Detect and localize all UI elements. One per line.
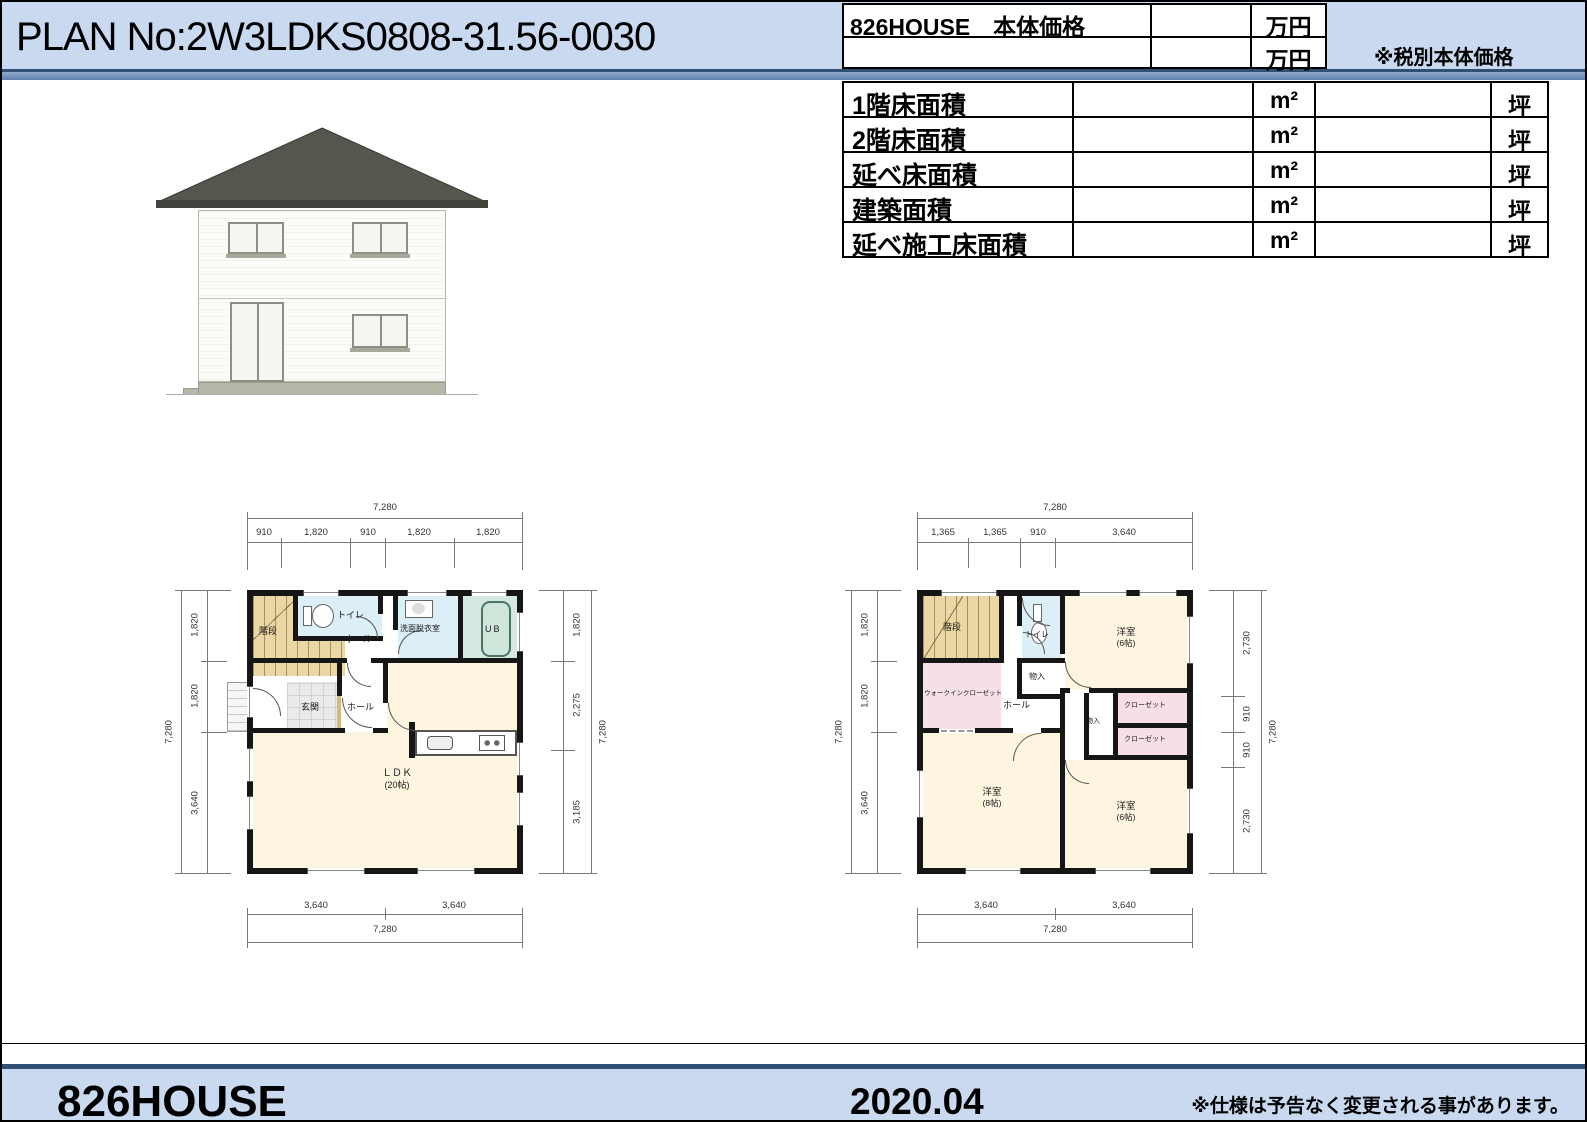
window-2f-right [352,222,408,254]
area-row-label: 延べ施工床面積 [852,226,1027,262]
price-unit-2: 万円 [1252,41,1325,75]
dim-total-bottom: 7,280 [1043,924,1067,935]
price-table-divider [1150,5,1152,67]
room-label-hall: ホール [1003,700,1030,710]
table-row: 2階床面積 m² 坪 [844,118,1547,153]
house-elevation [152,102,492,412]
dim-line [851,590,852,874]
window [917,770,923,818]
room-label-stairs: 階段 [259,626,277,636]
roof [152,102,492,214]
table-row: 建築面積 m² 坪 [844,188,1547,223]
dim-seg: 3,640 [1112,527,1136,538]
dim-seg: 2,730 [1242,809,1253,833]
dim-line [917,942,1193,943]
dim-seg: 1,820 [190,684,201,708]
dim-seg: 1,820 [407,527,431,538]
dim-seg: 1,820 [476,527,500,538]
window [517,612,523,652]
dim-seg: 1,820 [860,684,871,708]
sqm-unit: m² [1254,157,1314,184]
room-label-entrance: 玄関 [301,702,319,712]
window-2f-left [228,222,284,254]
room-label-toilet: トイレ [337,610,364,620]
room-label-stairs: 階段 [943,622,961,632]
footer-note: ※仕様は予告なく変更される事があります。 [1191,1091,1569,1118]
room-label-washroom: 洗面脱衣室 [400,624,440,633]
dim-seg: 3,640 [442,900,466,911]
dim-line [247,518,523,519]
dim-seg: 3,640 [860,791,871,815]
dim-seg: 910 [360,527,376,538]
room-label-bath: UB [485,624,502,634]
window [303,590,339,596]
washbasin-bowl [412,603,425,614]
window [417,868,475,874]
footer-brand: 826HOUSE [57,1077,287,1122]
room-label-bedroom3-size: (6帖) [1095,813,1157,823]
dim-total-left: 7,280 [834,720,845,744]
toilet-tank [303,606,312,626]
footer-hairline [2,1043,1585,1044]
window [1187,616,1193,664]
window [965,868,1021,874]
window [1095,868,1151,874]
price-table-divider [1250,5,1252,67]
dim-line [1261,590,1262,874]
room-label-storage2: 物入 [1086,718,1100,726]
dim-line [563,590,564,874]
dim-total-bottom: 7,280 [373,924,397,935]
tsubo-unit: 坪 [1492,122,1547,156]
tsubo-unit: 坪 [1492,87,1547,121]
kitchen-sink [427,736,453,750]
toilet-bowl [312,604,334,628]
dim-seg: 1,820 [304,527,328,538]
room-label-toilet: トイレ [1025,630,1049,639]
dim-seg: 1,820 [572,613,583,637]
page-title: PLAN No:2W3LDKS0808-31.56-0030 [16,15,655,60]
ground-line [166,394,478,395]
dim-seg: 1,820 [860,613,871,637]
sqm-unit: m² [1254,192,1314,219]
floor-divider-line [198,298,446,299]
dim-seg: 2,730 [1242,631,1253,655]
room-label-wic: ウォークインクローゼット [924,690,1002,697]
dim-seg: 910 [1030,527,1046,538]
footer-band: 826HOUSE 2020.04 ※仕様は予告なく変更される事があります。 [2,1064,1587,1122]
room-label-ldk-size: (20帖) [367,780,427,790]
price-row-1: 826HOUSE 本体価格 万円 [844,5,1325,38]
dim-seg: 910 [1242,706,1253,722]
window [941,590,997,596]
window-sill [350,254,410,258]
window [517,742,523,776]
window [307,868,365,874]
dim-line [917,518,1193,519]
dim-total-left: 7,280 [164,720,175,744]
dim-seg: 910 [1242,742,1253,758]
room-label-ldk: ＬＤＫ [367,768,427,780]
room-label-bedroom1-size: (6帖) [1095,639,1157,649]
window-1f-right [352,314,408,348]
dim-total-right: 7,280 [598,720,609,744]
window [247,748,253,782]
window [407,590,447,596]
room-label-closet1: クローゼット [1124,702,1166,710]
area-row-label: 1階床面積 [852,86,966,122]
area-row-label: 延べ床面積 [852,156,977,192]
window [1187,788,1193,834]
tsubo-unit: 坪 [1492,157,1547,191]
window [517,792,523,826]
window [247,796,253,830]
window-sill [226,254,286,258]
room-label-closet2: クローゼット [1124,736,1166,744]
price-table: 826HOUSE 本体価格 万円 万円 [842,3,1327,69]
door-arc [347,663,371,687]
footer-date: 2020.04 [850,1081,984,1122]
window-sill [350,348,410,352]
dim-seg: 3,640 [1112,900,1136,911]
room-label-hall-upper: ホール [345,634,372,644]
dim-total-top: 7,280 [373,502,397,513]
window [1079,590,1127,596]
dim-seg: 3,640 [190,791,201,815]
header-divider [2,69,1587,80]
window [1139,590,1177,596]
sqm-unit: m² [1254,87,1314,114]
dim-total-right: 7,280 [1268,720,1279,744]
area-table: 1階床面積 m² 坪 2階床面積 m² 坪 延べ床面積 m² 坪 建築面積 m²… [842,81,1549,258]
window [471,590,507,596]
dim-seg: 2,275 [572,693,583,717]
kitchen-stove [479,735,505,751]
dim-line [181,590,182,874]
plan-sheet: PLAN No:2W3LDKS0808-31.56-0030 826HOUSE … [0,0,1587,1122]
area-row-label: 2階床面積 [852,121,966,157]
tsubo-unit: 坪 [1492,227,1547,261]
sqm-unit: m² [1254,227,1314,254]
dim-line [591,590,592,874]
floor1-plan: 階段 トイレ ホール 洗面脱衣室 UB 玄関 ホール ＬＤＫ (20帖) 7,2… [247,590,523,874]
dim-seg: 3,640 [974,900,998,911]
tsubo-unit: 坪 [1492,192,1547,226]
dim-seg: 910 [256,527,272,538]
wic-opening [941,730,973,732]
dim-seg: 1,365 [931,527,955,538]
floor2-plan: 階段 トイレ 洋室 (6帖) ホール 物入 ウォークインクローゼット 物入 クロ… [917,590,1193,874]
sliding-door-1f [230,302,284,382]
table-row: 延べ床面積 m² 坪 [844,153,1547,188]
price-row-2: 万円 [844,36,1325,69]
dim-seg: 3,185 [572,800,583,824]
dim-seg: 3,640 [304,900,328,911]
front-door-arc [253,688,281,716]
tax-note: ※税別本体価格 [1374,41,1513,70]
dim-total-top: 7,280 [1043,502,1067,513]
table-row: 延べ施工床面積 m² 坪 [844,223,1547,258]
room-label-storage1: 物入 [1029,672,1045,681]
area-row-label: 建築面積 [852,191,952,227]
dim-seg: 1,820 [190,613,201,637]
sqm-unit: m² [1254,122,1314,149]
room-label-bedroom2-size: (8帖) [961,799,1023,809]
dim-seg: 1,365 [983,527,1007,538]
room-label-hall: ホール [347,702,374,712]
dim-line [247,942,523,943]
table-row: 1階床面積 m² 坪 [844,83,1547,118]
